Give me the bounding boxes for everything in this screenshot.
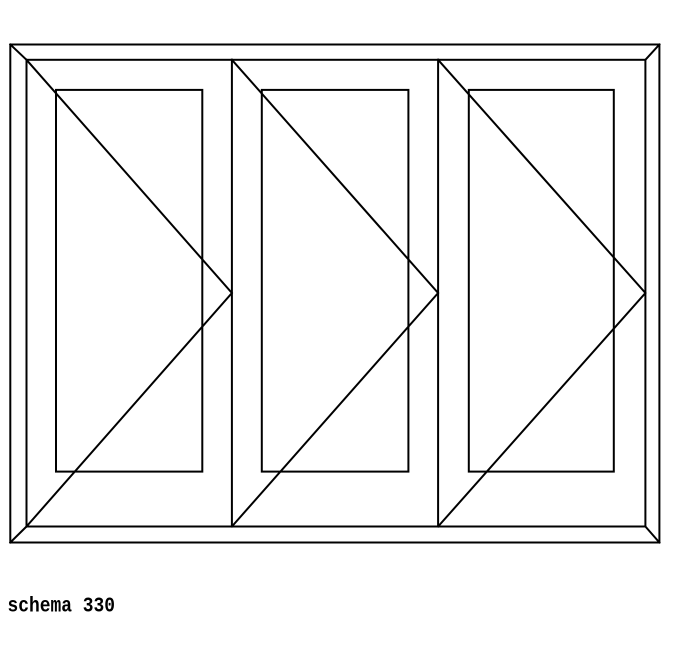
svg-text:schema 330: schema 330: [8, 596, 116, 619]
